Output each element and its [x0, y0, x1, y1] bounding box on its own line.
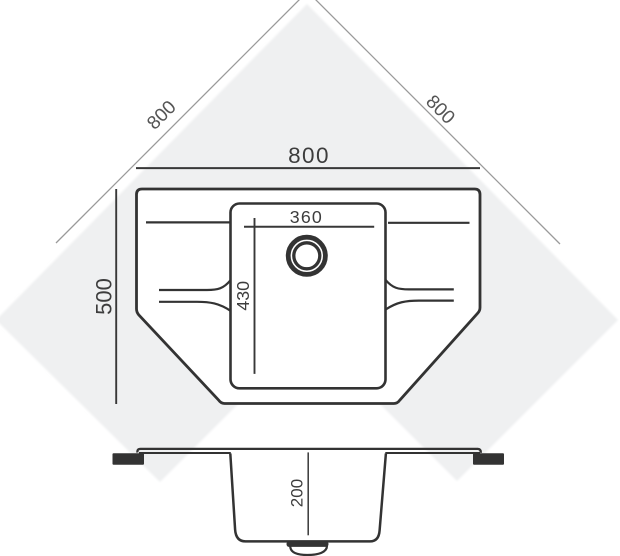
svg-text:430: 430 — [233, 281, 253, 311]
svg-text:800: 800 — [143, 97, 180, 134]
svg-text:800: 800 — [288, 143, 330, 168]
svg-text:500: 500 — [92, 278, 117, 315]
svg-text:200: 200 — [288, 479, 307, 507]
svg-text:800: 800 — [421, 91, 458, 128]
svg-text:360: 360 — [290, 207, 323, 227]
